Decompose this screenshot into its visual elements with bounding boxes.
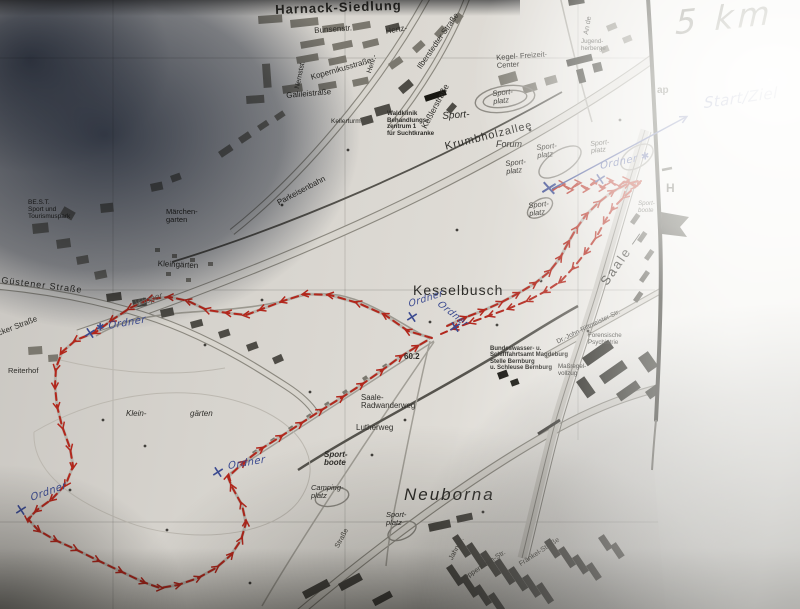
label-guestener-strasse: Güstener Straße xyxy=(1,276,83,295)
map-photo: Harnack-SiedlungBunsenstr.Hertz-Nernstst… xyxy=(0,0,800,609)
label-strasse-dark: Straße xyxy=(334,527,350,549)
label-kegel-freizeit-center: Kegel- Freizeit- Center xyxy=(496,50,548,69)
label-saale: Saale — xyxy=(598,228,646,288)
label-harnack-siedlung: Harnack-Siedlung xyxy=(275,0,402,17)
label-ap-fragment: ap xyxy=(657,86,669,97)
handwriting-distance: 5 km xyxy=(675,0,774,41)
label-kellerturm: Kellerturm xyxy=(331,119,361,126)
label-gaerten: gärten xyxy=(190,410,213,418)
label-saale-radwanderweg: Saale- Radwanderweg xyxy=(361,394,415,411)
handwriting-ordner-1: Ordner ✱ xyxy=(600,152,650,173)
label-kopernikusstrasse: Kopernikusstraße xyxy=(310,57,373,82)
label-forensische-psychiatrie: Forensische Psychiatrie xyxy=(588,333,622,346)
label-jahnstr: Jahnstr. xyxy=(448,536,466,561)
label-fraenkel-strasse: Fränkel-Straße xyxy=(518,537,561,569)
handwriting-start-ziel: Start/Ziel xyxy=(704,86,778,112)
label-cker-strasse: cker Straße xyxy=(0,315,39,338)
label-ilberstedter-strasse: Ilberstedter Straße xyxy=(416,12,461,71)
label-parkeisenbahn: Parkeisenbahn xyxy=(276,175,327,208)
label-sportboote-mid: Sport- boote xyxy=(324,451,348,468)
label-maerchengarten: Märchen- garten xyxy=(166,208,198,224)
handwriting-ordner-4: ✱ Ordner xyxy=(96,315,146,334)
label-massregelvollzug: Maßregel- vollzug xyxy=(558,364,586,377)
label-jugendherberge: Jugend- herberge xyxy=(581,39,606,52)
label-reiterhof: Reiterhof xyxy=(8,367,38,375)
label-sportplatz-4: Sport- platz xyxy=(528,200,550,218)
label-sportplatz-river: Sport- platz xyxy=(590,139,611,156)
label-bunsenstr: Bunsenstr. xyxy=(314,24,352,35)
label-oppenheim-str: Oppenheim-Str. xyxy=(462,549,507,582)
label-sportplatz-3: Sport- platz xyxy=(505,158,527,176)
label-forum: Forum xyxy=(496,140,522,150)
label-an-de: An de xyxy=(583,16,593,35)
label-neuborna: Neuborna xyxy=(404,486,495,504)
label-galileistrasse: Galileistraße xyxy=(286,88,331,100)
label-best-park: BE.S.T. Sport und Tourismuspark xyxy=(28,200,70,221)
label-nernststr: Nernstst. xyxy=(294,61,307,90)
handwriting-ordner-3: Ordner xyxy=(435,300,471,329)
label-sportplatz-neuborna: Sport- platz xyxy=(386,511,406,527)
handwriting-ordner-5: Ordner xyxy=(228,455,266,472)
label-bundeswasser: Bundeswasser- u. Schifffahrtsamt Magdebu… xyxy=(490,346,568,371)
label-hertz-str: Hertz- xyxy=(385,24,408,36)
label-sport-area: Sport- xyxy=(442,110,470,122)
label-sportboote-river: Sport- boote xyxy=(638,201,655,214)
label-campingplatz: Camping- platz xyxy=(311,484,344,500)
map-labels: Harnack-SiedlungBunsenstr.Hertz-Nernstst… xyxy=(0,0,800,609)
label-lutherweg: Lutherweg xyxy=(356,424,393,432)
label-sportplatz-stadium: Sport- platz xyxy=(492,88,514,106)
label-klein: Klein- xyxy=(126,410,146,418)
label-sportplatz-2: Sport- platz xyxy=(536,142,558,160)
label-wipper: Wipper xyxy=(134,291,164,309)
label-height-60-2: 60.2 xyxy=(404,353,420,361)
label-waldklinik: Waldklinik Behandlungs- zentrum 1 für Su… xyxy=(387,111,434,137)
handwriting-ordner-6: Ordner xyxy=(30,481,68,504)
label-h-sign: H xyxy=(666,182,675,195)
label-kleingaerten: Kleingärten xyxy=(158,260,199,271)
